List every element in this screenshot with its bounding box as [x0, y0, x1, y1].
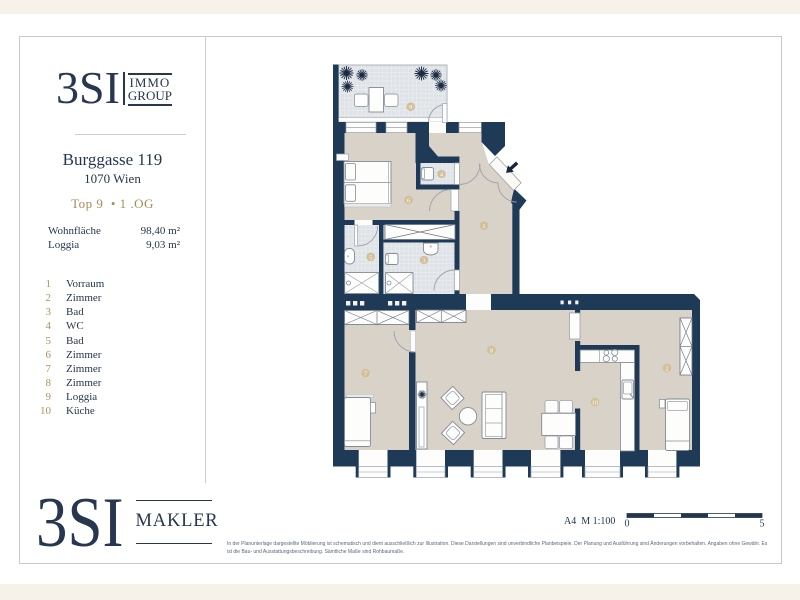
svg-text:0: 0 — [625, 519, 630, 530]
svg-text:5: 5 — [369, 254, 372, 261]
svg-text:9: 9 — [409, 104, 412, 111]
svg-text:8: 8 — [490, 348, 493, 355]
svg-text:3: 3 — [422, 258, 425, 265]
svg-text:10: 10 — [592, 401, 598, 407]
svg-text:5: 5 — [760, 519, 765, 530]
svg-text:2: 2 — [665, 366, 668, 373]
svg-text:1: 1 — [482, 223, 485, 230]
